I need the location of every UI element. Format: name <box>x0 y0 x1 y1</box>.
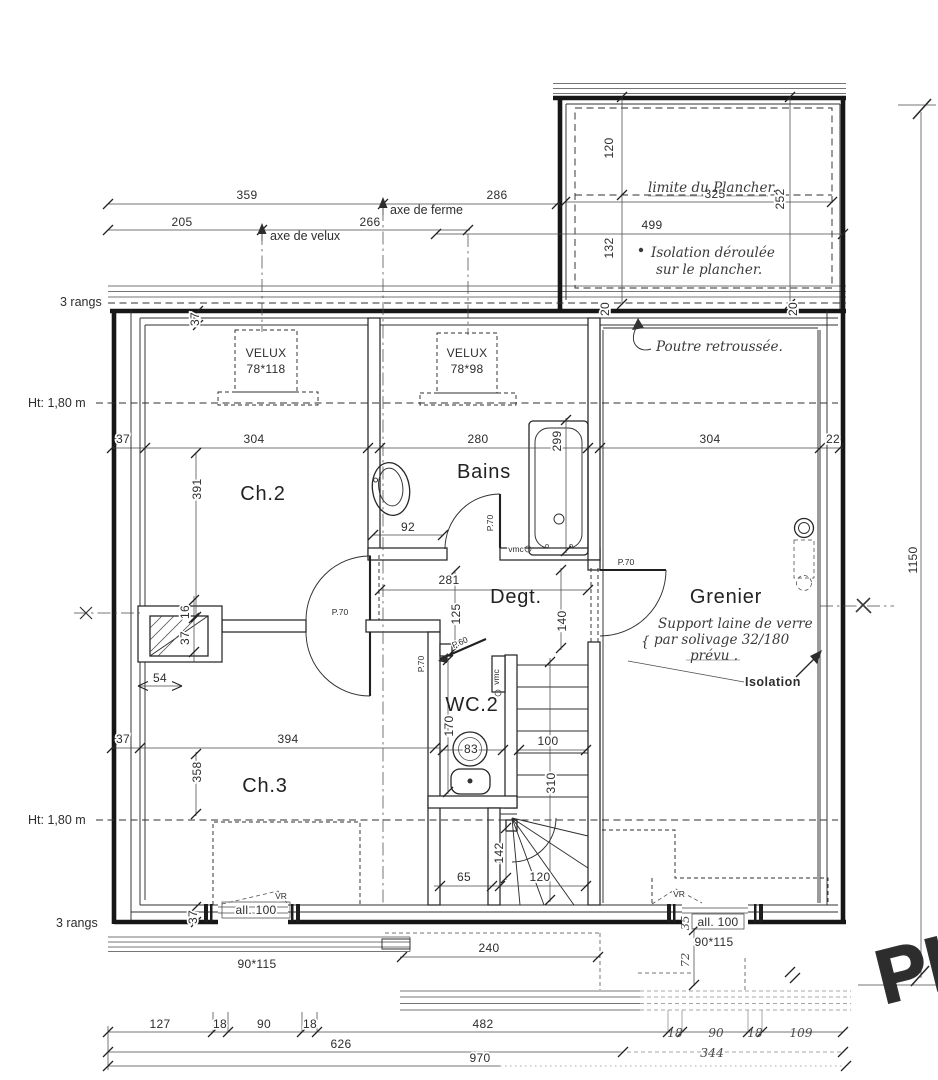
chain1-90a: 90 <box>257 1017 271 1031</box>
axe-velux-label: axe de velux <box>270 229 341 243</box>
allege-right-label: all. 100 <box>697 915 738 929</box>
dim-20a: 20 <box>598 302 612 316</box>
limite-plancher-note: limite du Plancher. <box>648 180 777 196</box>
vmc-wc-label: vmc <box>491 668 501 684</box>
support-note-2: par solivage 32/180 <box>654 632 790 648</box>
room-wc2: WC.2 <box>445 694 498 716</box>
wall-wc-stair <box>505 655 517 808</box>
dim-394: 394 <box>278 732 299 746</box>
masonry-bands <box>108 84 851 1011</box>
dim-142: 142 <box>492 843 506 864</box>
corner-sketch-letters: PL <box>868 915 938 1021</box>
dim-37-row1: 37 <box>116 432 130 446</box>
wall-wc-west <box>428 632 440 905</box>
support-note-1: Support laine de verre <box>658 616 813 632</box>
dim-310: 310 <box>544 773 558 794</box>
window-right-size: 90*115 <box>695 935 734 949</box>
dim-358: 358 <box>190 762 204 783</box>
poutre-arrowhead <box>632 318 644 330</box>
dim-359: 359 <box>237 188 258 202</box>
support-note-3: prévu . <box>690 648 738 664</box>
dim-391: 391 <box>190 479 204 500</box>
dim-266: 266 <box>360 215 381 229</box>
wall-wc-south <box>428 796 517 808</box>
dim-499: 499 <box>642 218 663 232</box>
wall-ch2-south-right <box>366 620 440 632</box>
dim-92: 92 <box>401 520 415 534</box>
wall-bains-south-left <box>368 548 447 560</box>
door-label-bains: P.70 <box>485 515 495 532</box>
velux1-name: VELUX <box>246 346 287 360</box>
dim-100: 100 <box>538 734 559 748</box>
dim-132: 132 <box>602 238 616 259</box>
height-label-top: Ht: 1,80 m <box>28 396 86 410</box>
dim-304b: 304 <box>700 432 721 446</box>
bottom-dimension-chains: 127 18 90 18 482 18 90 18 109 626 344 97… <box>150 1017 813 1065</box>
door-grenier <box>600 570 666 636</box>
flue-conduit <box>794 519 814 591</box>
dim-1150: 1150 <box>906 546 920 573</box>
dim-170: 170 <box>442 716 456 737</box>
chain1-109: 109 <box>790 1026 813 1040</box>
rangs-top-label: 3 rangs <box>60 295 102 309</box>
room-grenier: Grenier <box>690 586 762 608</box>
support-brace: { <box>641 634 650 650</box>
dim-37-chimney: 37 <box>178 631 192 645</box>
chain1-18c: 18 <box>667 1026 683 1040</box>
wall-ch2-south-left <box>222 620 306 632</box>
dim-20b: 20 <box>786 302 800 316</box>
center-cross-right <box>856 598 871 613</box>
isolation-leader <box>628 661 744 682</box>
vmc-bains-label: vmc <box>508 544 524 554</box>
door-label-ch3: P.70 <box>416 656 426 673</box>
velux2-name: VELUX <box>447 346 488 360</box>
dim-54: 54 <box>153 671 167 685</box>
room-ch3: Ch.3 <box>242 775 287 797</box>
rangs-bottom-label: 3 rangs <box>56 916 98 930</box>
dim-16: 16 <box>178 605 192 619</box>
velux2-size: 78*98 <box>451 362 484 376</box>
win-72-note: 72 <box>678 953 692 968</box>
axe-ferme-label: axe de ferme <box>390 203 463 217</box>
dim-22: 22 <box>826 432 840 446</box>
dim-299: 299 <box>550 431 564 452</box>
dim-281: 281 <box>439 573 460 587</box>
chain3-970: 970 <box>470 1051 491 1065</box>
printed-labels: 3 rangs 3 rangs Ht: 1,80 m Ht: 1,80 m 35… <box>28 138 920 971</box>
wall-37-top: 37 <box>188 312 202 326</box>
room-ch2: Ch.2 <box>240 483 285 505</box>
wall-bains-grenier <box>588 318 600 560</box>
vr-left-label: VR <box>275 891 287 901</box>
poutre-retroussee-note: Poutre retroussée. <box>655 339 783 355</box>
dim-280: 280 <box>468 432 489 446</box>
allege-left-label: all. 100 <box>235 903 276 917</box>
dim-140: 140 <box>555 611 569 632</box>
dim-304a: 304 <box>244 432 265 446</box>
wall-ch2-bains <box>368 318 380 555</box>
vr-right-label: VR <box>673 889 685 899</box>
window-left-size: 90*115 <box>238 957 277 971</box>
win-35-note: 35 <box>678 916 692 931</box>
velux1-size: 78*118 <box>247 362 286 376</box>
dim-37-row2: 37 <box>116 732 130 746</box>
height-label-bottom: Ht: 1,80 m <box>28 813 86 827</box>
floor-plan-canvas: 3 rangs 3 rangs Ht: 1,80 m Ht: 1,80 m 35… <box>0 0 938 1080</box>
dim-240: 240 <box>479 941 500 955</box>
chain1-482: 482 <box>473 1017 494 1031</box>
room-degt: Degt. <box>490 586 542 608</box>
axe-velux-arrow <box>258 223 267 234</box>
axe-ferme-arrow <box>379 197 388 208</box>
dim-205: 205 <box>172 215 193 229</box>
dim-286: 286 <box>487 188 508 202</box>
chain2-626: 626 <box>331 1037 352 1051</box>
room-bains: Bains <box>457 461 511 483</box>
isolation-deroulee-1: Isolation déroulée <box>650 245 775 261</box>
dashed-lines <box>96 108 846 990</box>
chain1-90b: 90 <box>708 1026 724 1040</box>
dim-125: 125 <box>449 604 463 625</box>
door-label-ch2: P.70 <box>332 607 349 617</box>
chain1-18a: 18 <box>213 1017 227 1031</box>
door-ch3 <box>306 632 370 696</box>
dim-120-annex: 120 <box>602 138 616 159</box>
door-label-grenier: P.70 <box>618 557 635 567</box>
dim-83: 83 <box>464 742 478 756</box>
chain2-344: 344 <box>700 1045 724 1060</box>
wall-37-bottom: 37 <box>186 910 200 924</box>
interior-walls <box>222 318 818 905</box>
dim-65: 65 <box>457 870 471 884</box>
dim-120-stair: 120 <box>530 870 551 884</box>
chain1-127: 127 <box>150 1017 171 1031</box>
chain1-18b: 18 <box>303 1017 317 1031</box>
isolation-deroulee-2: sur le plancher. <box>656 262 762 278</box>
scanned-floor-plan-page: 3 rangs 3 rangs Ht: 1,80 m Ht: 1,80 m 35… <box>0 0 938 1080</box>
isolation-wall-label: Isolation <box>745 675 801 689</box>
wall-grenier-west <box>588 642 600 905</box>
chain1-18d: 18 <box>747 1026 763 1040</box>
